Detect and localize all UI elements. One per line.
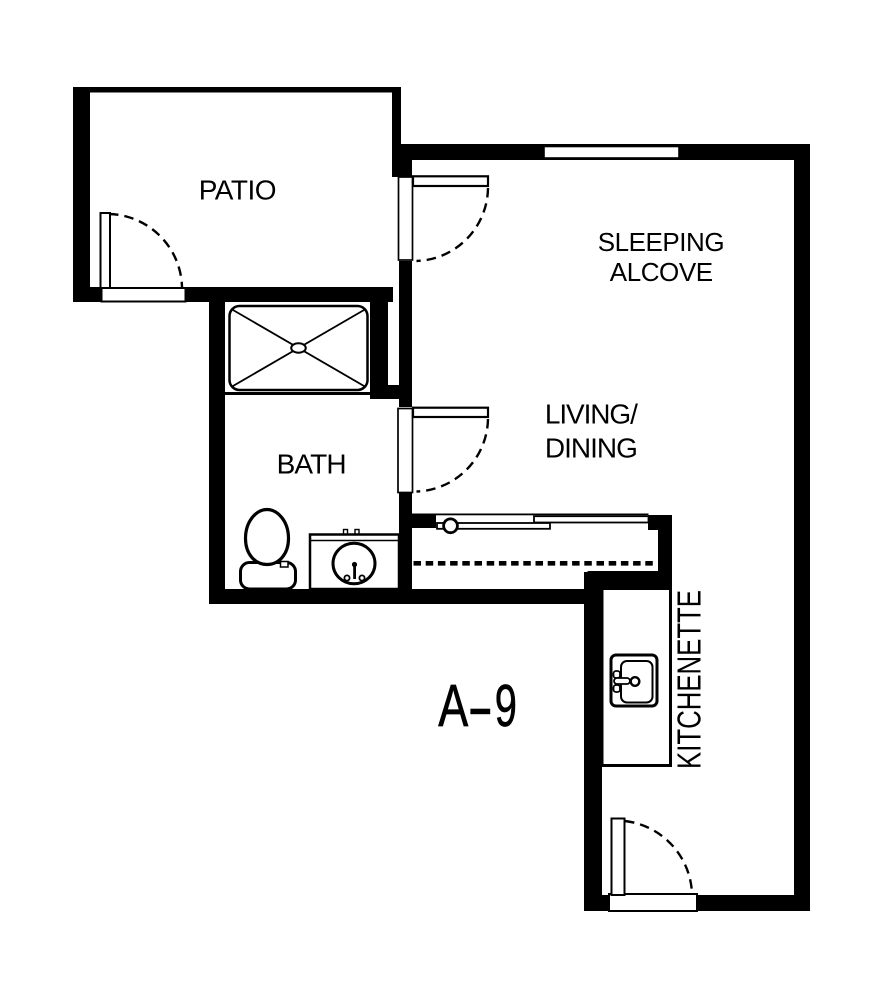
svg-text:ALCOVE: ALCOVE [610,257,713,287]
svg-text:BATH: BATH [277,449,346,480]
svg-text:LIVING/: LIVING/ [545,398,638,429]
svg-text:DINING: DINING [545,433,637,464]
svg-text:KITCHENETTE: KITCHENETTE [671,590,708,769]
svg-text:9: 9 [495,673,517,739]
svg-text:SLEEPING: SLEEPING [598,227,724,257]
svg-text:PATIO: PATIO [199,174,276,205]
svg-text:A: A [438,673,468,739]
